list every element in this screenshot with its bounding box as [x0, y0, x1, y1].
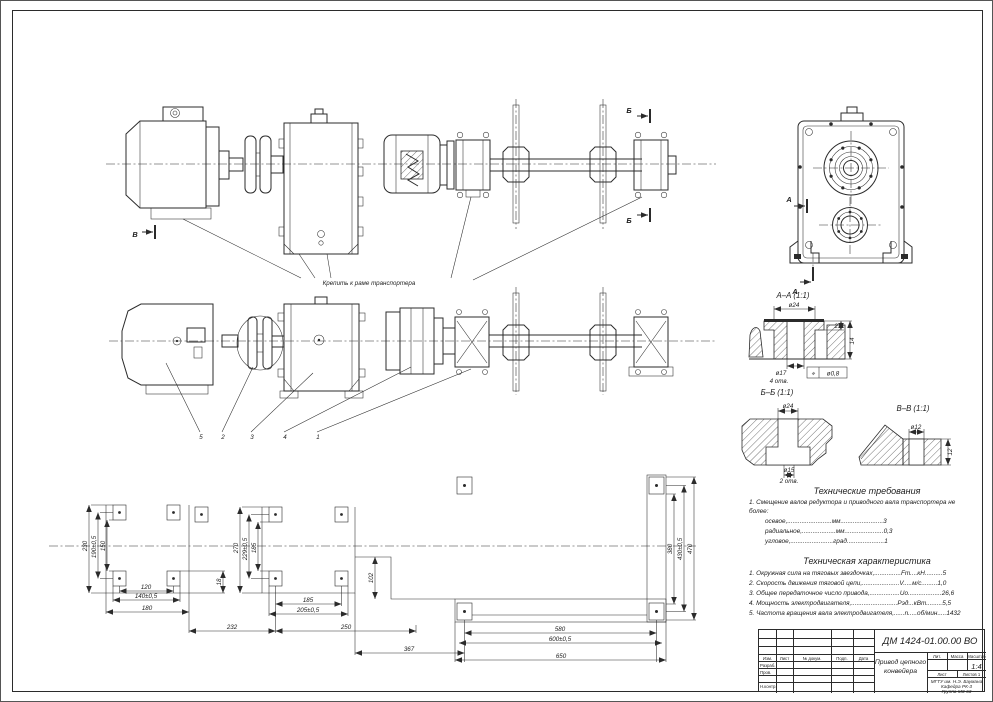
tech-characteristics-item: 4. Мощность электродвигателя,...........… [749, 601, 951, 607]
dim-label: 12 [947, 448, 954, 455]
scale-label: Масштаб [967, 654, 986, 659]
sheet-label: Лист [927, 672, 957, 677]
gearbox-end-view: А А [785, 107, 912, 296]
dim-label: ø12 [911, 424, 922, 431]
mass-label: Масса [947, 654, 967, 659]
dim-label: 470 [687, 543, 694, 554]
dim-label: 2 [834, 323, 839, 330]
top-assembly-view: Б Б В Крепить к раме т [106, 99, 716, 287]
gdt-tolerance-value: ø0,8 [827, 371, 840, 378]
doc-number: ДМ 1424-01.00.00 ВО [874, 636, 986, 647]
dim-label: 205±0,5 [296, 607, 320, 614]
section-bb: Б–Б (1:1) ø24 ø15 2 отв. [742, 388, 832, 485]
gearbox-holes-group [262, 507, 355, 593]
section-letter-b: Б [626, 216, 631, 225]
col-list: Лист [776, 656, 793, 661]
dim-label: 140±0,5 [135, 593, 158, 600]
dim-label: 120 [141, 584, 152, 591]
holes-note: 4 отв. [770, 378, 789, 385]
dim-label: 430±0,5 [677, 537, 684, 560]
section-letter-b: Б [626, 106, 631, 115]
tech-characteristics-title: Техническая характеристика [747, 557, 987, 566]
gdt-frame: ⌖ ø0,8 [807, 367, 847, 378]
bearing-dims: 380 430±0,5 470 580 600±0,5 650 [455, 477, 696, 660]
position-number: 1 [316, 434, 319, 441]
drawing-title-line2: конвейера [874, 668, 927, 675]
dim-label: ø24 [789, 302, 800, 309]
dim-label: 18 [216, 578, 223, 585]
gearbox-dims: 270 229±0,5 185 185 205±0,5 [233, 507, 348, 633]
bearing-front-right [629, 310, 673, 377]
dim-label: 580 [555, 626, 566, 633]
dim-label: ø15 [784, 467, 795, 474]
dim-label: 150 [100, 540, 107, 551]
col-sign: Подп. [831, 656, 853, 661]
dim-label: 190±0,5 [91, 535, 98, 558]
dim-label: 185 [251, 542, 258, 553]
position-number: 4 [283, 434, 287, 441]
section-vv: В–В (1:1) ø12 12 [859, 404, 954, 465]
tech-requirements-item: угловое,........................град....… [765, 539, 888, 545]
dim-label: 230 [82, 540, 89, 552]
attach-note-leaders [183, 197, 642, 280]
row-checker: Пров. [760, 670, 793, 675]
dim-label: ø17 [776, 370, 787, 377]
position-leaders [166, 363, 471, 432]
dim-label: 367 [404, 646, 415, 653]
dim-label: 600±0,5 [549, 636, 572, 643]
motor-plan [126, 107, 243, 219]
drawing-title-line1: Привод цепного [874, 659, 927, 666]
dim-label: 185 [303, 597, 314, 604]
tech-characteristics-item: 1. Окружная сила на тяговых звездочках,.… [749, 571, 946, 577]
col-izm: Изм. [759, 656, 776, 661]
gearbox-plan [279, 109, 363, 254]
dim-label: 270 [233, 542, 240, 554]
tech-characteristics-item: 3. Общее передаточное число привода,....… [749, 591, 954, 597]
dim-label: 229±0,5 [242, 537, 249, 561]
holes-note: 2 отв. [779, 478, 799, 485]
motor-coupling-front [237, 316, 284, 370]
drawing-sheet: Б Б В Крепить к раме т [0, 0, 993, 702]
col-doc: № докум. [793, 656, 831, 661]
dim-label: 180 [142, 605, 153, 612]
section-title: Б–Б (1:1) [761, 388, 794, 397]
row-norm-control: Н.контр. [760, 684, 793, 689]
chain-dims: 232 250 367 102 [189, 557, 666, 662]
title-block: Изм. Лист № докум. Подп. Дата Разраб. Пр… [758, 629, 985, 692]
col-date: Дата [853, 656, 874, 661]
dim-label: 250 [340, 624, 352, 631]
org-group: Группа МЗ-63 [927, 689, 986, 694]
tech-requirements-line: 1. Смещение валов редуктора и приводного… [749, 500, 955, 506]
bearing-plan-right [634, 132, 676, 198]
tech-requirements-line: более: [749, 509, 769, 515]
tech-characteristics-item: 5. Частота вращения вала электродвигател… [749, 611, 961, 617]
bearing-plan-left [456, 132, 490, 198]
position-number: 2 [220, 434, 225, 441]
tech-requirements-item: радиальное,...................мм........… [765, 529, 893, 535]
lit-label: Лит. [927, 654, 947, 659]
section-title: В–В (1:1) [897, 404, 930, 413]
front-assembly-view: 5 2 3 4 1 [109, 287, 717, 441]
motor-front [122, 304, 238, 394]
section-aa: А–А (1:1) ø24 ø17 4 отв. 2 14 ⌖ ø0,8 [749, 291, 856, 385]
section-title: А–А (1:1) [776, 291, 810, 300]
attach-note: Крепить к раме транспортера [323, 280, 416, 287]
bearing-front-left [455, 310, 489, 375]
section-letter-a: А [785, 195, 791, 204]
section-mark-b-lower: Б [626, 208, 650, 225]
position-number: 5 [199, 434, 203, 441]
gearbox-front [278, 297, 365, 398]
row-developer: Разраб. [760, 663, 793, 668]
section-mark-a-upper: А [785, 195, 807, 213]
gdt-position-symbol: ⌖ [811, 371, 815, 378]
tech-requirements-title: Технические требования [747, 487, 987, 496]
motor-coupling-plan [245, 136, 283, 193]
sheets-label: Листов 1 [957, 672, 986, 677]
dim-label: 232 [226, 624, 238, 631]
tech-characteristics-item: 2. Скорость движения тяговой цепи,......… [749, 581, 946, 587]
tech-requirements-item: осевое,.........................мм......… [765, 519, 887, 525]
section-mark-b-upper: Б [626, 106, 650, 123]
section-mark-v: В [132, 225, 155, 239]
position-number: 3 [250, 434, 254, 441]
bearing-holes-group [355, 475, 666, 622]
dim-label: 102 [368, 572, 375, 583]
section-letter-v: В [132, 230, 138, 239]
motor-holes-group [106, 505, 208, 593]
dim-label: 380 [667, 543, 674, 554]
dim-label: 650 [556, 653, 567, 660]
section-mark-a-lower: А [791, 253, 813, 296]
dim-label: 14 [849, 337, 856, 344]
dim-label: ø24 [783, 403, 794, 410]
mounting-holes-view: 230 190±0,5 150 120 140±0,5 180 18 [49, 475, 696, 662]
